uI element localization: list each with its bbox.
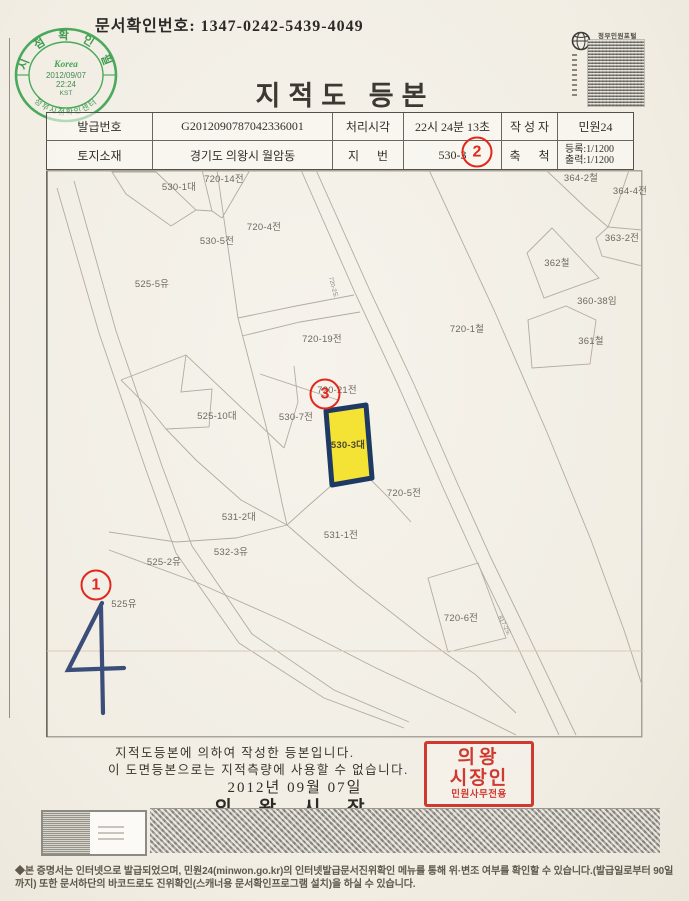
parcel-label: 720-4전 — [247, 219, 281, 233]
parcel-label: 525-5유 — [135, 276, 169, 290]
parcel-label: 363-2전 — [605, 230, 639, 244]
road-label: 817-2도 — [496, 614, 513, 637]
parcel-label: 364-2철 — [564, 170, 598, 184]
verification-barcode-small — [41, 810, 147, 856]
lot-number-value: 530-3 — [404, 141, 502, 169]
parcel-label: 720-5전 — [387, 485, 421, 499]
scale-printed: 출력:1/1200 — [565, 155, 614, 166]
portal-qr-barcode — [588, 40, 644, 106]
lot-number-label: 지 번 — [333, 141, 404, 169]
time-verification-stamp: 시 점 확 인 필 정부시점확인센터 Korea 2012/09/07 22:2… — [12, 26, 120, 124]
stamp-brand: Korea — [53, 60, 78, 70]
mayor-official-seal: 의왕 시장인 민원사무전용 — [424, 741, 534, 807]
scale-value: 등록:1/1200 출력:1/1200 — [558, 141, 633, 169]
footer-note: ◆본 증명서는 인터넷으로 발급되었으며, 민원24(minwon.go.kr)… — [15, 866, 677, 891]
stamp-graphic: 시 점 확 인 필 정부시점확인센터 Korea 2012/09/07 22:2… — [12, 26, 120, 124]
process-time-label: 처리시각 — [333, 113, 404, 141]
parcel-label: 530-7전 — [279, 409, 313, 423]
scale-label: 축 척 — [502, 141, 558, 169]
portal-side-marks — [572, 52, 577, 96]
issuance-info-table: 발급번호 G2012090787042336001 처리시각 22시 24분 1… — [46, 112, 634, 170]
parcel-label: 530-1대 — [162, 179, 196, 193]
parcel-label: 531-2대 — [222, 509, 256, 523]
parcel-label-layer: 720-14전530-1대720-4전530-5전525-5유720-1철720… — [46, 170, 643, 738]
author-value: 민원24 — [558, 113, 633, 141]
scale-registered: 등록:1/1200 — [565, 144, 614, 155]
land-location-label: 토지소재 — [47, 141, 153, 169]
document-confirm-number: 문서확인번호: 1347-0242-5439-4049 — [95, 12, 364, 36]
parcel-label: 525-2유 — [147, 554, 181, 568]
portal-label: 정부민원포털 — [598, 30, 637, 40]
parcel-label: 525유 — [111, 596, 136, 610]
stamp-date: 2012/09/07 — [46, 71, 87, 80]
barcode-text-area — [90, 812, 145, 854]
seal-text-3: 민원사무전용 — [451, 791, 506, 801]
parcel-label: 530-3대 — [331, 437, 365, 451]
parcel-label: 720-6전 — [444, 610, 478, 624]
parcel-label: 531-1전 — [324, 527, 358, 541]
scan-edge-line — [9, 38, 10, 718]
author-label: 작 성 자 — [502, 113, 558, 141]
parcel-label: 532-3유 — [214, 544, 248, 558]
barcode-pattern — [43, 812, 90, 854]
verification-barcode-strip — [150, 808, 660, 853]
issue-number-label: 발급번호 — [47, 113, 153, 141]
parcel-label: 720-14전 — [204, 171, 244, 185]
parcel-label: 720-19전 — [302, 331, 342, 345]
land-location-value: 경기도 의왕시 월암동 — [153, 141, 333, 169]
stamp-time: 22:24 — [56, 80, 77, 89]
parcel-label: 364-4전 — [613, 183, 647, 197]
parcel-label: 361철 — [578, 333, 603, 347]
parcel-label: 720-21전 — [317, 382, 357, 396]
scanned-cadastral-document: 문서확인번호: 1347-0242-5439-4049 지적도 등본 시 점 확… — [0, 0, 689, 901]
seal-text-1: 의왕 — [458, 748, 501, 767]
parcel-label: 360-38임 — [577, 293, 617, 307]
stamp-timezone: KST — [60, 90, 73, 97]
parcel-label: 362철 — [544, 255, 569, 269]
parcel-label: 720-1철 — [450, 321, 484, 335]
issue-number-value: G2012090787042336001 — [153, 113, 333, 141]
parcel-label: 530-5전 — [200, 233, 234, 247]
process-time-value: 22시 24분 13초 — [404, 113, 502, 141]
seal-text-2: 시장인 — [450, 769, 508, 788]
parcel-label: 525-10대 — [197, 408, 237, 422]
road-label: 720-2도 — [327, 276, 341, 298]
page-title: 지적도 등본 — [175, 74, 515, 113]
